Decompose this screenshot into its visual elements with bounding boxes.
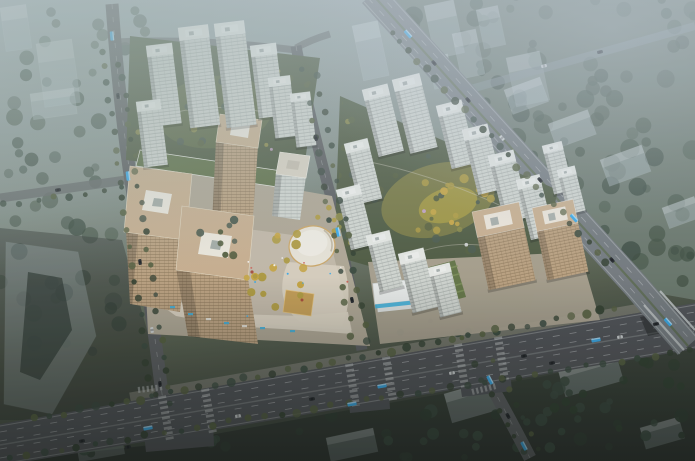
rendering-canvas xyxy=(0,0,695,461)
blue-tint xyxy=(0,0,695,461)
aerial-rendering xyxy=(0,0,695,461)
